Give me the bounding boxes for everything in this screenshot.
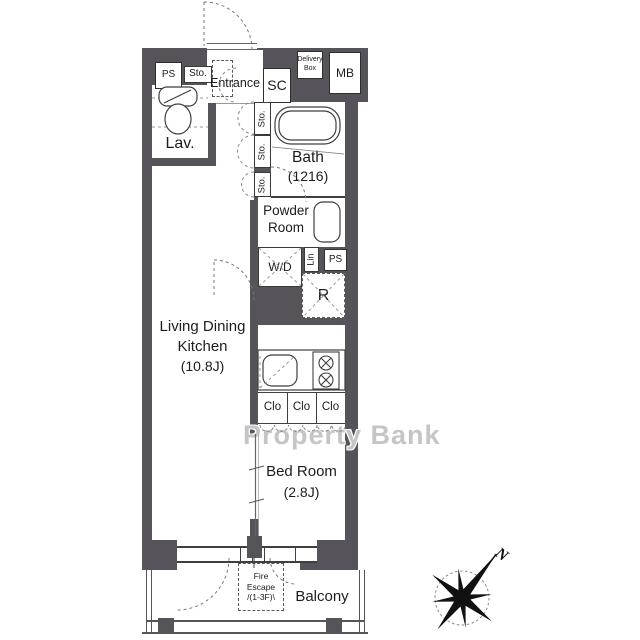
balcony-door-arcs: [177, 558, 296, 610]
floor-plan-canvas: PS Sto. SC Delivery Box MB Sto. Sto. Sto…: [0, 0, 640, 640]
powder-sink-icon: [314, 202, 340, 242]
kitchen-sink-icon: [260, 355, 297, 388]
entrance-door-arc: [204, 2, 252, 50]
compass-north-label: N: [491, 544, 512, 566]
refrigerator-dashes: [303, 274, 344, 317]
storage-door-arcs: [238, 102, 254, 197]
closet-folding-doors: [260, 425, 346, 431]
hall-door-arc: [214, 260, 254, 300]
washer-dryer-dashes: [259, 248, 301, 286]
bath-door-arc: [271, 167, 306, 202]
bathtub-icon: [272, 107, 344, 154]
stove-icon: [313, 352, 339, 389]
plan-overlay: N: [0, 0, 640, 640]
compass-rose-icon: N: [432, 544, 512, 630]
sliding-partition: [249, 434, 264, 536]
shoe-closet-door-arc: [219, 68, 236, 102]
